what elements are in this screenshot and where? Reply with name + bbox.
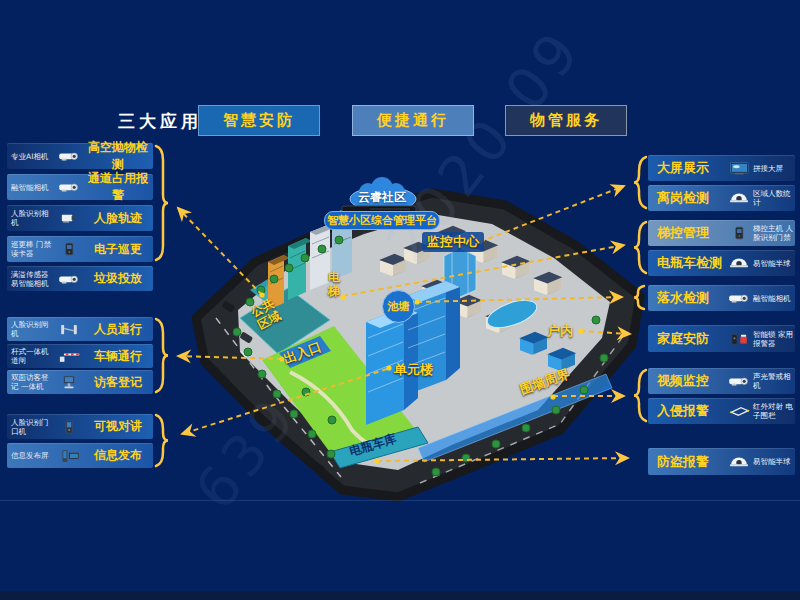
- feature-row-video-surveillance: 视频监控 声光警戒相机: [648, 368, 795, 394]
- feature-row-elevator-control: 梯控管理 梯控主机 人脸识别门禁: [648, 220, 795, 246]
- device-label: 人脸识别相机: [7, 209, 55, 227]
- bullet-camera-icon: [725, 372, 753, 390]
- feature-label: 大屏展示: [648, 159, 725, 177]
- device-label: 区域人数统计: [753, 189, 795, 207]
- feature-label: 电子巡更: [83, 241, 153, 258]
- box-camera-icon: [55, 209, 83, 227]
- feature-label: 通道占用报警: [83, 170, 153, 204]
- barrier-gate-icon: [55, 347, 83, 365]
- cloud-community-label: 云睿社区: [350, 189, 414, 206]
- bullet-camera-icon: [55, 147, 83, 165]
- feature-row-lane-occupancy: 融智能相机 通道占用报警: [7, 174, 153, 200]
- device-label: 融智能相机: [7, 183, 55, 192]
- device-label: 满溢传感器 易智能相机: [7, 270, 55, 288]
- feature-row-garbage: 满溢传感器 易智能相机 垃圾投放: [7, 266, 153, 291]
- device-label: 人脸识别闸机: [7, 320, 55, 338]
- smart-community-infographic: 2020-09 639: [0, 0, 800, 600]
- bullet-camera-icon: [55, 270, 83, 288]
- door-station-icon: [55, 418, 83, 436]
- feature-label: 入侵报警: [648, 402, 725, 420]
- management-platform-pill: 智慧小区综合管理平台: [324, 211, 440, 230]
- bottom-bar: [0, 591, 800, 600]
- feature-row-intrusion-alarm: 入侵报警 红外对射 电子围栏: [648, 398, 795, 424]
- feature-label: 家庭安防: [648, 330, 725, 348]
- feature-label: 可视对讲: [83, 418, 153, 435]
- smart-lock-siren-icon: [725, 330, 753, 348]
- device-label: 融智能相机: [753, 294, 795, 303]
- page-title: 三大应用: [118, 110, 202, 133]
- feature-row-vehicle: 杆式一体机 道闸 车辆通行: [7, 344, 153, 368]
- feature-label: 访客登记: [83, 374, 153, 391]
- device-label: 红外对射 电子围栏: [753, 402, 795, 420]
- unit-building-label: 单元楼: [394, 361, 433, 379]
- feature-row-home-security: 家庭安防 智能锁 家用报警器: [648, 325, 795, 352]
- dome-camera-icon: [725, 453, 753, 471]
- tab-property-service[interactable]: 物管服务: [505, 105, 627, 136]
- bullet-camera-icon: [55, 178, 83, 196]
- feature-row-face-track: 人脸识别相机 人脸轨迹: [7, 205, 153, 231]
- feature-row-absence-detect: 离岗检测 区域人数统计: [648, 185, 795, 211]
- device-label: 双面访客登记 一体机: [7, 373, 55, 391]
- feature-label: 梯控管理: [648, 224, 725, 242]
- feature-row-pedestrian: 人脸识别闸机 人员通行: [7, 317, 153, 341]
- feature-row-high-altitude-throw: 专业AI相机 高空抛物检测: [7, 143, 153, 169]
- dome-camera-icon: [725, 254, 753, 272]
- feature-label: 人员通行: [83, 321, 153, 338]
- arrow-public-to-left: [178, 208, 262, 295]
- device-label: 拼接大屏: [753, 164, 795, 173]
- feature-label: 高空抛物检测: [83, 139, 153, 173]
- visitor-kiosk-icon: [55, 373, 83, 391]
- device-label: 梯控主机 人脸识别门禁: [753, 224, 795, 242]
- feature-label: 落水检测: [648, 289, 725, 307]
- turnstile-icon: [55, 320, 83, 338]
- feature-row-video-intercom: 人脸识别门口机 可视对讲: [7, 414, 153, 439]
- elevator-label: 电梯: [327, 271, 341, 299]
- feature-label: 电瓶车检测: [648, 254, 725, 272]
- signage-screen-icon: [55, 447, 83, 465]
- device-label: 专业AI相机: [7, 152, 55, 161]
- elevator-panel-icon: [725, 224, 753, 242]
- device-label: 声光警戒相机: [753, 372, 795, 390]
- device-label: 易智能半球: [753, 259, 795, 268]
- feature-label: 视频监控: [648, 372, 725, 390]
- divider-line: [0, 500, 800, 501]
- bullet-camera-icon: [725, 289, 753, 307]
- video-wall-icon: [725, 159, 753, 177]
- tab-smart-security[interactable]: 智慧安防: [198, 105, 320, 136]
- feature-label: 车辆通行: [83, 348, 153, 365]
- device-label: 巡更棒 门禁读卡器: [7, 240, 55, 258]
- perimeter-beam-icon: [725, 402, 753, 420]
- device-label: 杆式一体机 道闸: [7, 347, 55, 365]
- feature-label: 人脸轨迹: [83, 210, 153, 227]
- feature-row-ebike-detect: 电瓶车检测 易智能半球: [648, 250, 795, 276]
- device-label: 智能锁 家用报警器: [753, 330, 795, 348]
- card-reader-icon: [55, 240, 83, 258]
- feature-row-burglar-alarm: 防盗报警 易智能半球: [648, 448, 795, 475]
- feature-row-drowning-detect: 落水检测 融智能相机: [648, 285, 795, 311]
- feature-label: 防盗报警: [648, 453, 725, 471]
- feature-label: 离岗检测: [648, 189, 725, 207]
- feature-row-info-publish: 信息发布屏 信息发布: [7, 443, 153, 468]
- device-label: 人脸识别门口机: [7, 418, 55, 436]
- monitor-center-label: 监控中心: [422, 232, 484, 252]
- tab-convenient-access[interactable]: 便捷通行: [352, 105, 474, 136]
- feature-row-visitor: 双面访客登记 一体机 访客登记: [7, 370, 153, 394]
- feature-label: 信息发布: [83, 447, 153, 464]
- pond-badge: 池塘: [382, 290, 415, 323]
- device-label: 易智能半球: [753, 457, 795, 466]
- dome-camera-icon: [725, 189, 753, 207]
- feature-row-big-screen: 大屏展示 拼接大屏: [648, 155, 795, 181]
- feature-label: 垃圾投放: [83, 270, 153, 287]
- feature-row-e-patrol: 巡更棒 门禁读卡器 电子巡更: [7, 236, 153, 262]
- indoor-label: 户内: [547, 322, 573, 340]
- device-label: 信息发布屏: [7, 451, 55, 460]
